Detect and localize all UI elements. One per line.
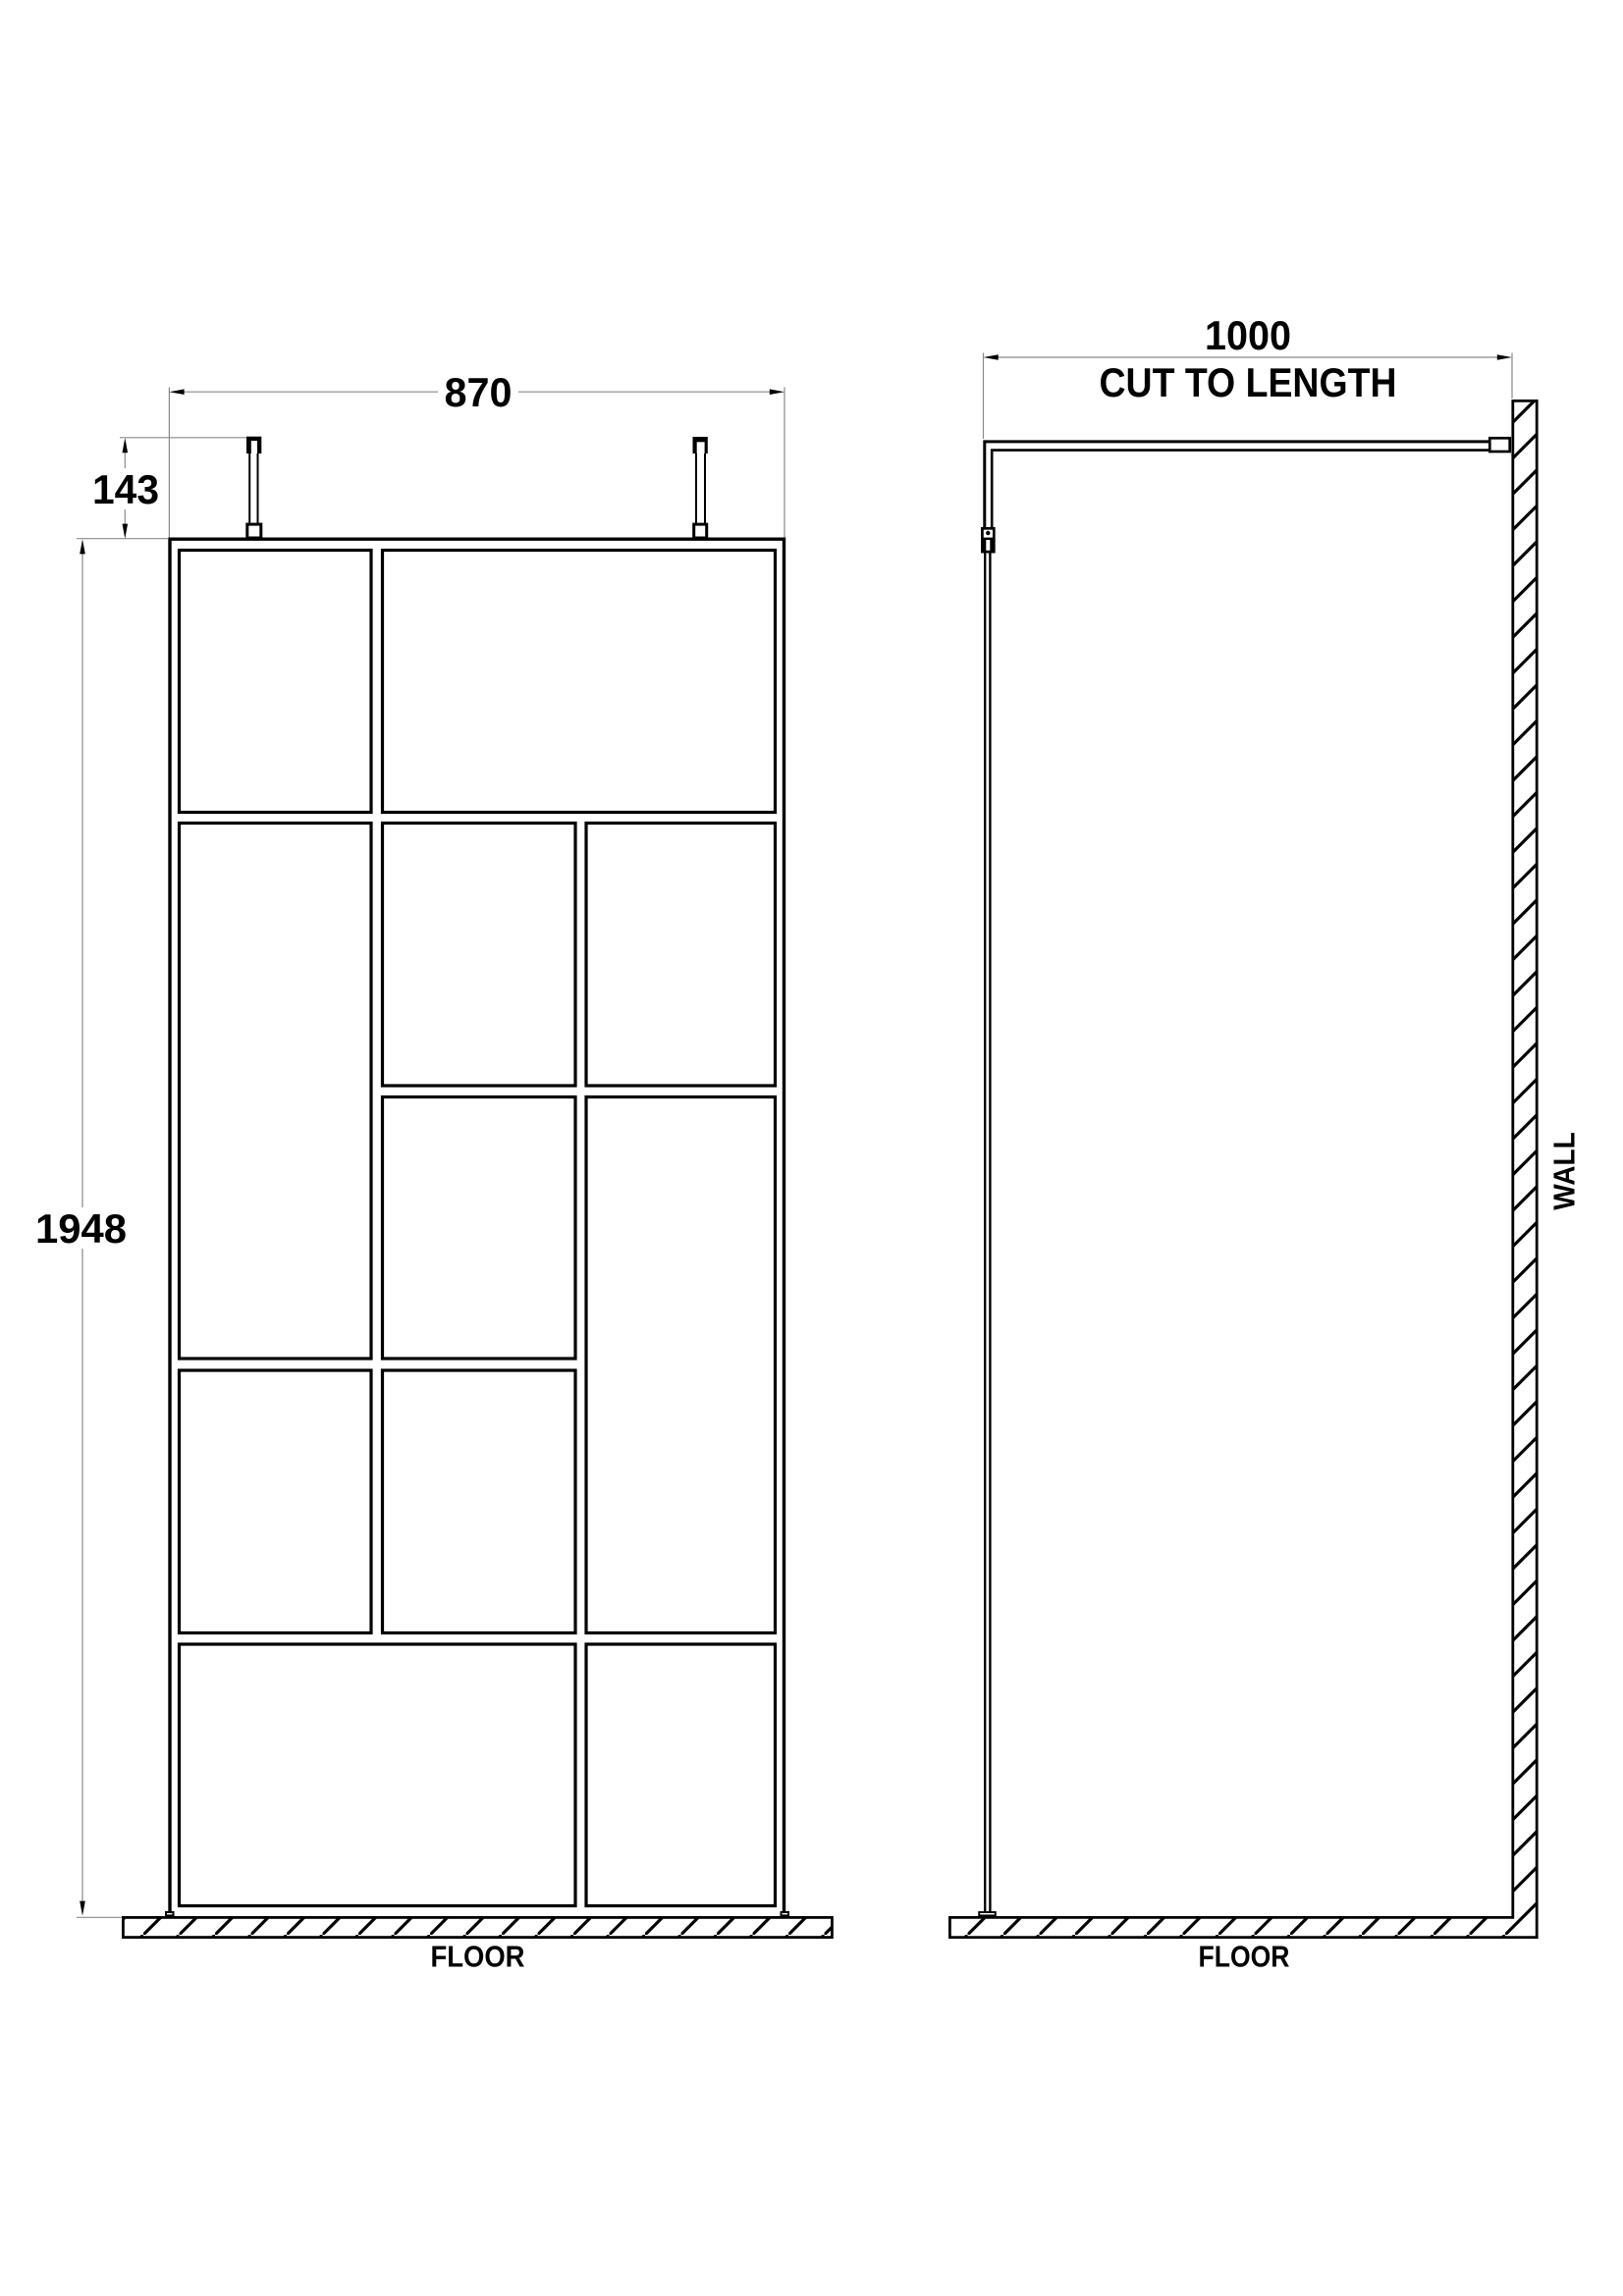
svg-text:1948: 1948: [35, 1205, 127, 1252]
svg-text:FLOOR: FLOOR: [1199, 1940, 1290, 1974]
svg-text:FLOOR: FLOOR: [431, 1940, 525, 1974]
svg-text:143: 143: [92, 466, 159, 512]
svg-text:1000: 1000: [1205, 312, 1291, 358]
svg-text:870: 870: [445, 369, 513, 415]
svg-text:CUT TO LENGTH: CUT TO LENGTH: [1100, 359, 1397, 405]
svg-text:WALL: WALL: [1547, 1132, 1582, 1210]
